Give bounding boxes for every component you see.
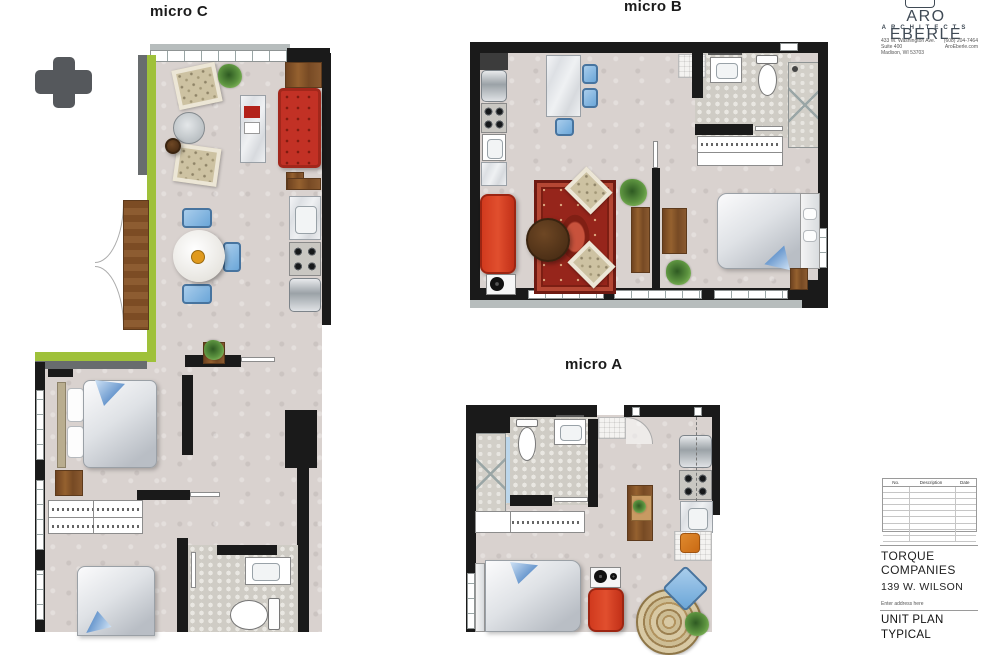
wall: [177, 538, 188, 632]
kitchen-counter: [680, 501, 713, 533]
toilet-tank: [516, 419, 538, 427]
wall: [470, 42, 828, 53]
floor-plan-micro-c: [35, 50, 331, 632]
wall: [588, 419, 598, 507]
hanging-rod: [52, 525, 139, 528]
sheet: { "plans": { "micro_c": {"label": "micro…: [0, 0, 1000, 632]
door-swing: [95, 266, 124, 327]
window: [150, 50, 290, 62]
dining-chair: [182, 284, 212, 304]
side-stool: [165, 138, 181, 154]
window: [819, 228, 827, 268]
book: [244, 106, 260, 118]
window: [36, 390, 44, 460]
revision-row: [883, 536, 976, 542]
wall: [137, 490, 190, 500]
balcony-deck: [123, 200, 149, 330]
door-leaf: [191, 552, 196, 588]
firm-subtitle: ARCHITECTS: [868, 25, 984, 31]
nightstand: [790, 268, 808, 290]
wall: [475, 417, 510, 433]
plant: [685, 612, 709, 636]
bathroom-sink: [245, 557, 291, 585]
fridge: [289, 278, 321, 312]
plant: [620, 179, 647, 206]
wall: [692, 52, 703, 98]
floor-plan-micro-b: [470, 42, 828, 308]
stove-burners: [481, 103, 507, 133]
toilet-bowl: [518, 427, 536, 461]
door-leaf: [653, 141, 658, 168]
wall: [138, 55, 147, 175]
closet-shelves: [48, 500, 143, 534]
sofa: [480, 194, 516, 274]
greens: [633, 500, 646, 513]
coffee-table: [526, 218, 570, 262]
plan-label-micro-a: micro A: [565, 356, 622, 373]
centerpiece: [191, 250, 205, 264]
wall: [712, 405, 720, 515]
window-sill: [470, 300, 828, 308]
bathroom-sink: [554, 419, 586, 445]
door-leaf: [755, 126, 783, 131]
shelf-line: [510, 512, 511, 532]
headboard: [57, 382, 66, 468]
pillow: [67, 388, 84, 422]
desk: [662, 208, 687, 254]
wall: [652, 168, 660, 290]
client-name: TORQUE COMPANIES: [881, 549, 971, 577]
firm-website: AroEberle.com: [938, 44, 978, 50]
sink-bowl: [487, 139, 503, 159]
toilet-bowl: [758, 64, 777, 96]
toilet-bowl: [230, 600, 268, 630]
wall: [480, 53, 508, 70]
revision-table: No. Description Date: [882, 478, 977, 532]
plant: [666, 260, 691, 285]
window: [614, 290, 702, 299]
section-line: [696, 417, 698, 501]
daybed: [278, 88, 321, 168]
sheet-title: UNIT PLAN: [881, 614, 981, 626]
shelf-line: [698, 152, 782, 153]
project-name: 139 W. WILSON: [881, 581, 981, 593]
col-date: Date: [953, 479, 976, 486]
dining-chair: [555, 118, 574, 136]
window: [694, 407, 702, 416]
record-player: [594, 570, 607, 583]
address-placeholder: Enter address here: [881, 601, 971, 607]
armchair: [588, 588, 624, 632]
pillow: [803, 230, 817, 242]
wall: [298, 545, 309, 632]
window: [36, 480, 44, 550]
address-line: Madison, WI 53703: [881, 50, 941, 56]
window: [780, 43, 798, 51]
kitchen-counter: [481, 162, 507, 186]
plan-label-micro-c: micro C: [150, 3, 208, 20]
headboard: [475, 563, 485, 632]
wall: [182, 375, 193, 455]
sheet-title-line2: TYPICAL: [881, 629, 981, 641]
floor-plan-micro-a: [466, 405, 720, 632]
nightstand: [55, 470, 83, 496]
window: [467, 573, 475, 629]
record-player: [490, 277, 504, 291]
mirror: [556, 415, 584, 417]
bed: [83, 380, 157, 468]
door-leaf: [241, 357, 275, 362]
hanging-rod: [701, 143, 779, 146]
sink-bowl: [716, 63, 738, 79]
pillow: [803, 208, 817, 220]
book: [244, 122, 260, 134]
shelf-line: [49, 517, 142, 518]
wall: [695, 124, 753, 135]
wall: [285, 410, 317, 468]
revision-table-header: No. Description Date: [883, 479, 976, 487]
col-no: No.: [883, 479, 908, 486]
divider: [880, 610, 978, 611]
wall: [510, 495, 552, 506]
closet: [697, 136, 783, 166]
shower-glass: [506, 437, 510, 503]
hanging-rod: [512, 521, 581, 524]
toilet-tank: [268, 598, 280, 630]
sink: [295, 206, 317, 234]
wall: [322, 53, 331, 325]
mirror: [708, 53, 742, 55]
sink-bowl: [252, 563, 280, 581]
col-description: Description: [908, 479, 953, 486]
plant: [204, 340, 224, 360]
entry-mat: [598, 417, 626, 439]
wall: [470, 42, 480, 308]
title-block: ARO EBERLE ARCHITECTS 433 W. Washington …: [860, 0, 1000, 632]
dining-chair: [182, 208, 212, 228]
dining-chair: [223, 242, 241, 272]
divider: [880, 545, 978, 546]
window: [714, 290, 788, 299]
bathroom-sink: [710, 57, 742, 83]
bed: [77, 566, 155, 636]
plant: [218, 64, 242, 88]
kitchen-island: [627, 485, 653, 541]
window: [632, 407, 640, 416]
sink-bowl: [560, 425, 582, 441]
logo-icon: [905, 0, 935, 8]
wall: [48, 369, 73, 377]
console-table: [631, 207, 650, 273]
plan-label-micro-b: micro B: [624, 0, 682, 15]
door-swing: [95, 202, 124, 263]
kitchen-shelf: [287, 178, 321, 190]
accent-wall: [35, 352, 147, 361]
shower: [788, 62, 822, 148]
window: [36, 570, 44, 620]
stool: [680, 533, 700, 553]
wall: [35, 361, 147, 369]
toilet-tank: [756, 55, 778, 64]
bed: [717, 193, 801, 269]
fridge: [481, 70, 507, 102]
dining-chair: [582, 64, 598, 84]
kitchen-sink: [482, 134, 506, 161]
closet: [475, 511, 585, 533]
bed: [485, 560, 581, 632]
stove-burners: [289, 242, 321, 276]
speaker: [610, 573, 617, 580]
door-leaf: [554, 497, 588, 502]
hanging-rod: [52, 508, 139, 511]
door-leaf: [190, 492, 220, 497]
firm-contact: (608) 204-7464 AroEberle.com: [938, 38, 978, 50]
sink-bowl: [688, 508, 708, 530]
console-table: [285, 62, 322, 88]
kitchen-counter: [289, 196, 321, 240]
firm-address: 433 W. Washington Ave. Suite 400 Madison…: [881, 38, 941, 56]
wall: [217, 545, 277, 555]
shelf-line: [93, 501, 94, 533]
shower-head: [792, 66, 798, 72]
shower: [475, 433, 506, 515]
dining-table: [546, 55, 581, 117]
pillow: [67, 426, 84, 458]
dining-chair: [582, 88, 598, 108]
